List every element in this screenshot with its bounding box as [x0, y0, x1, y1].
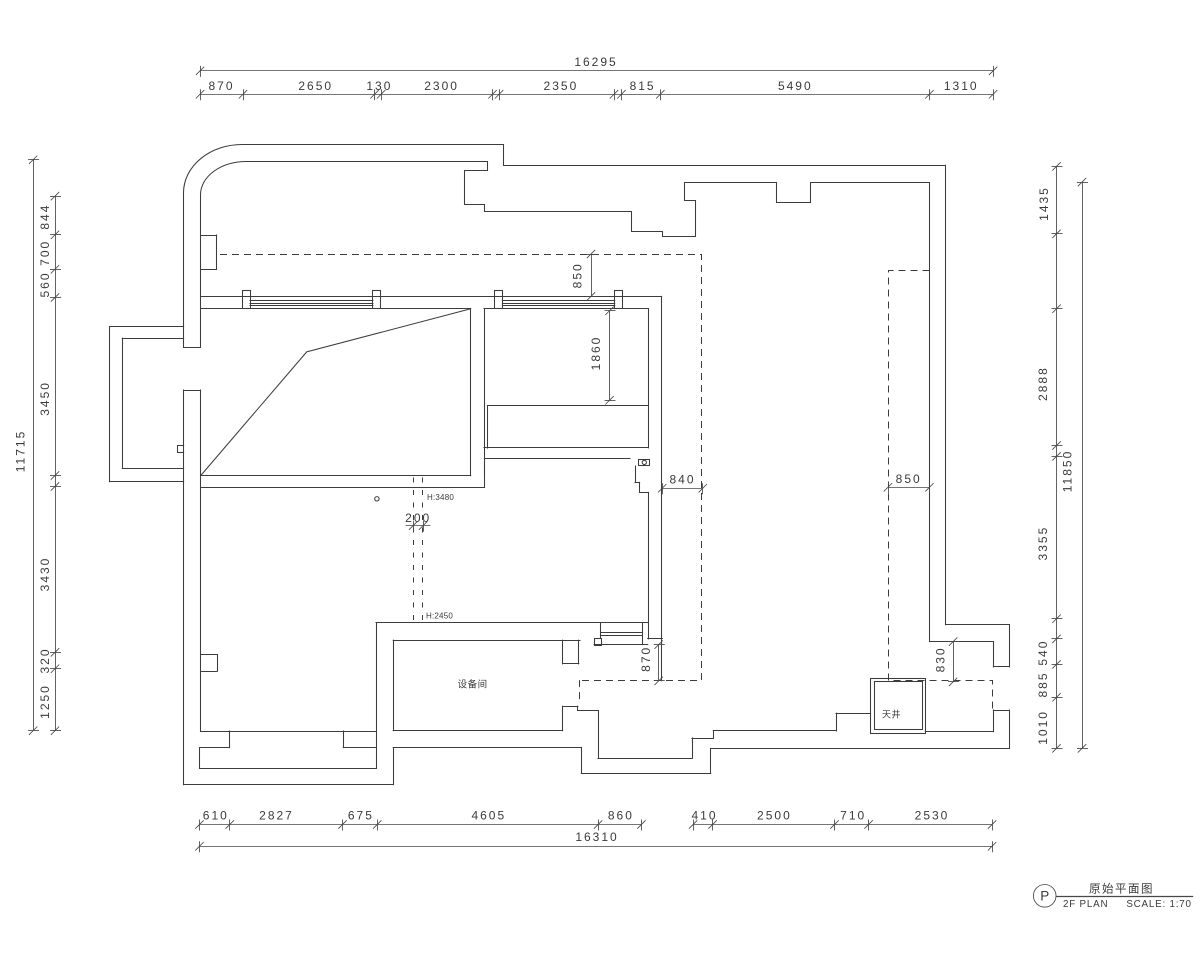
svg-text:130: 130	[366, 79, 392, 93]
svg-text:2827: 2827	[259, 809, 294, 823]
svg-text:P: P	[1040, 889, 1049, 904]
svg-text:830: 830	[933, 646, 947, 672]
svg-text:2650: 2650	[298, 79, 333, 93]
svg-text:1250: 1250	[38, 684, 52, 719]
svg-text:710: 710	[840, 809, 866, 823]
svg-text:3450: 3450	[38, 381, 52, 416]
svg-text:870: 870	[639, 646, 653, 672]
svg-text:815: 815	[630, 79, 656, 93]
svg-text:540: 540	[1036, 640, 1050, 666]
svg-text:H:2450: H:2450	[426, 612, 453, 621]
svg-text:2888: 2888	[1036, 366, 1050, 401]
svg-text:860: 860	[608, 809, 634, 823]
svg-text:2530: 2530	[915, 809, 950, 823]
svg-text:840: 840	[669, 473, 695, 487]
svg-text:原始平面图: 原始平面图	[1089, 882, 1154, 896]
svg-text:4605: 4605	[471, 809, 506, 823]
svg-text:设备间: 设备间	[458, 679, 488, 691]
svg-text:1860: 1860	[589, 336, 603, 371]
svg-text:320: 320	[38, 647, 52, 673]
svg-text:700: 700	[38, 240, 52, 266]
svg-text:885: 885	[1036, 671, 1050, 697]
svg-text:1010: 1010	[1036, 710, 1050, 745]
svg-text:16295: 16295	[574, 55, 617, 69]
svg-text:410: 410	[691, 809, 717, 823]
svg-text:16310: 16310	[575, 830, 618, 844]
svg-text:844: 844	[38, 204, 52, 230]
svg-text:3355: 3355	[1036, 526, 1050, 561]
svg-text:870: 870	[208, 79, 234, 93]
svg-text:2500: 2500	[757, 809, 792, 823]
svg-text:天井: 天井	[882, 709, 901, 720]
svg-text:H:3480: H:3480	[427, 493, 454, 502]
svg-text:1310: 1310	[944, 79, 979, 93]
svg-text:675: 675	[348, 809, 374, 823]
svg-text:850: 850	[896, 472, 922, 486]
svg-text:1435: 1435	[1037, 186, 1051, 221]
svg-text:SCALE: 1:70: SCALE: 1:70	[1126, 899, 1191, 910]
svg-text:11715: 11715	[13, 430, 27, 472]
svg-text:560: 560	[38, 271, 52, 297]
svg-text:5490: 5490	[778, 79, 813, 93]
svg-text:11850: 11850	[1060, 450, 1074, 492]
svg-text:2300: 2300	[424, 79, 459, 93]
svg-text:2F PLAN: 2F PLAN	[1063, 899, 1108, 910]
svg-text:3430: 3430	[38, 557, 52, 592]
svg-text:610: 610	[203, 809, 229, 823]
svg-text:200: 200	[405, 511, 431, 525]
svg-text:850: 850	[571, 262, 585, 288]
svg-text:2350: 2350	[544, 79, 579, 93]
